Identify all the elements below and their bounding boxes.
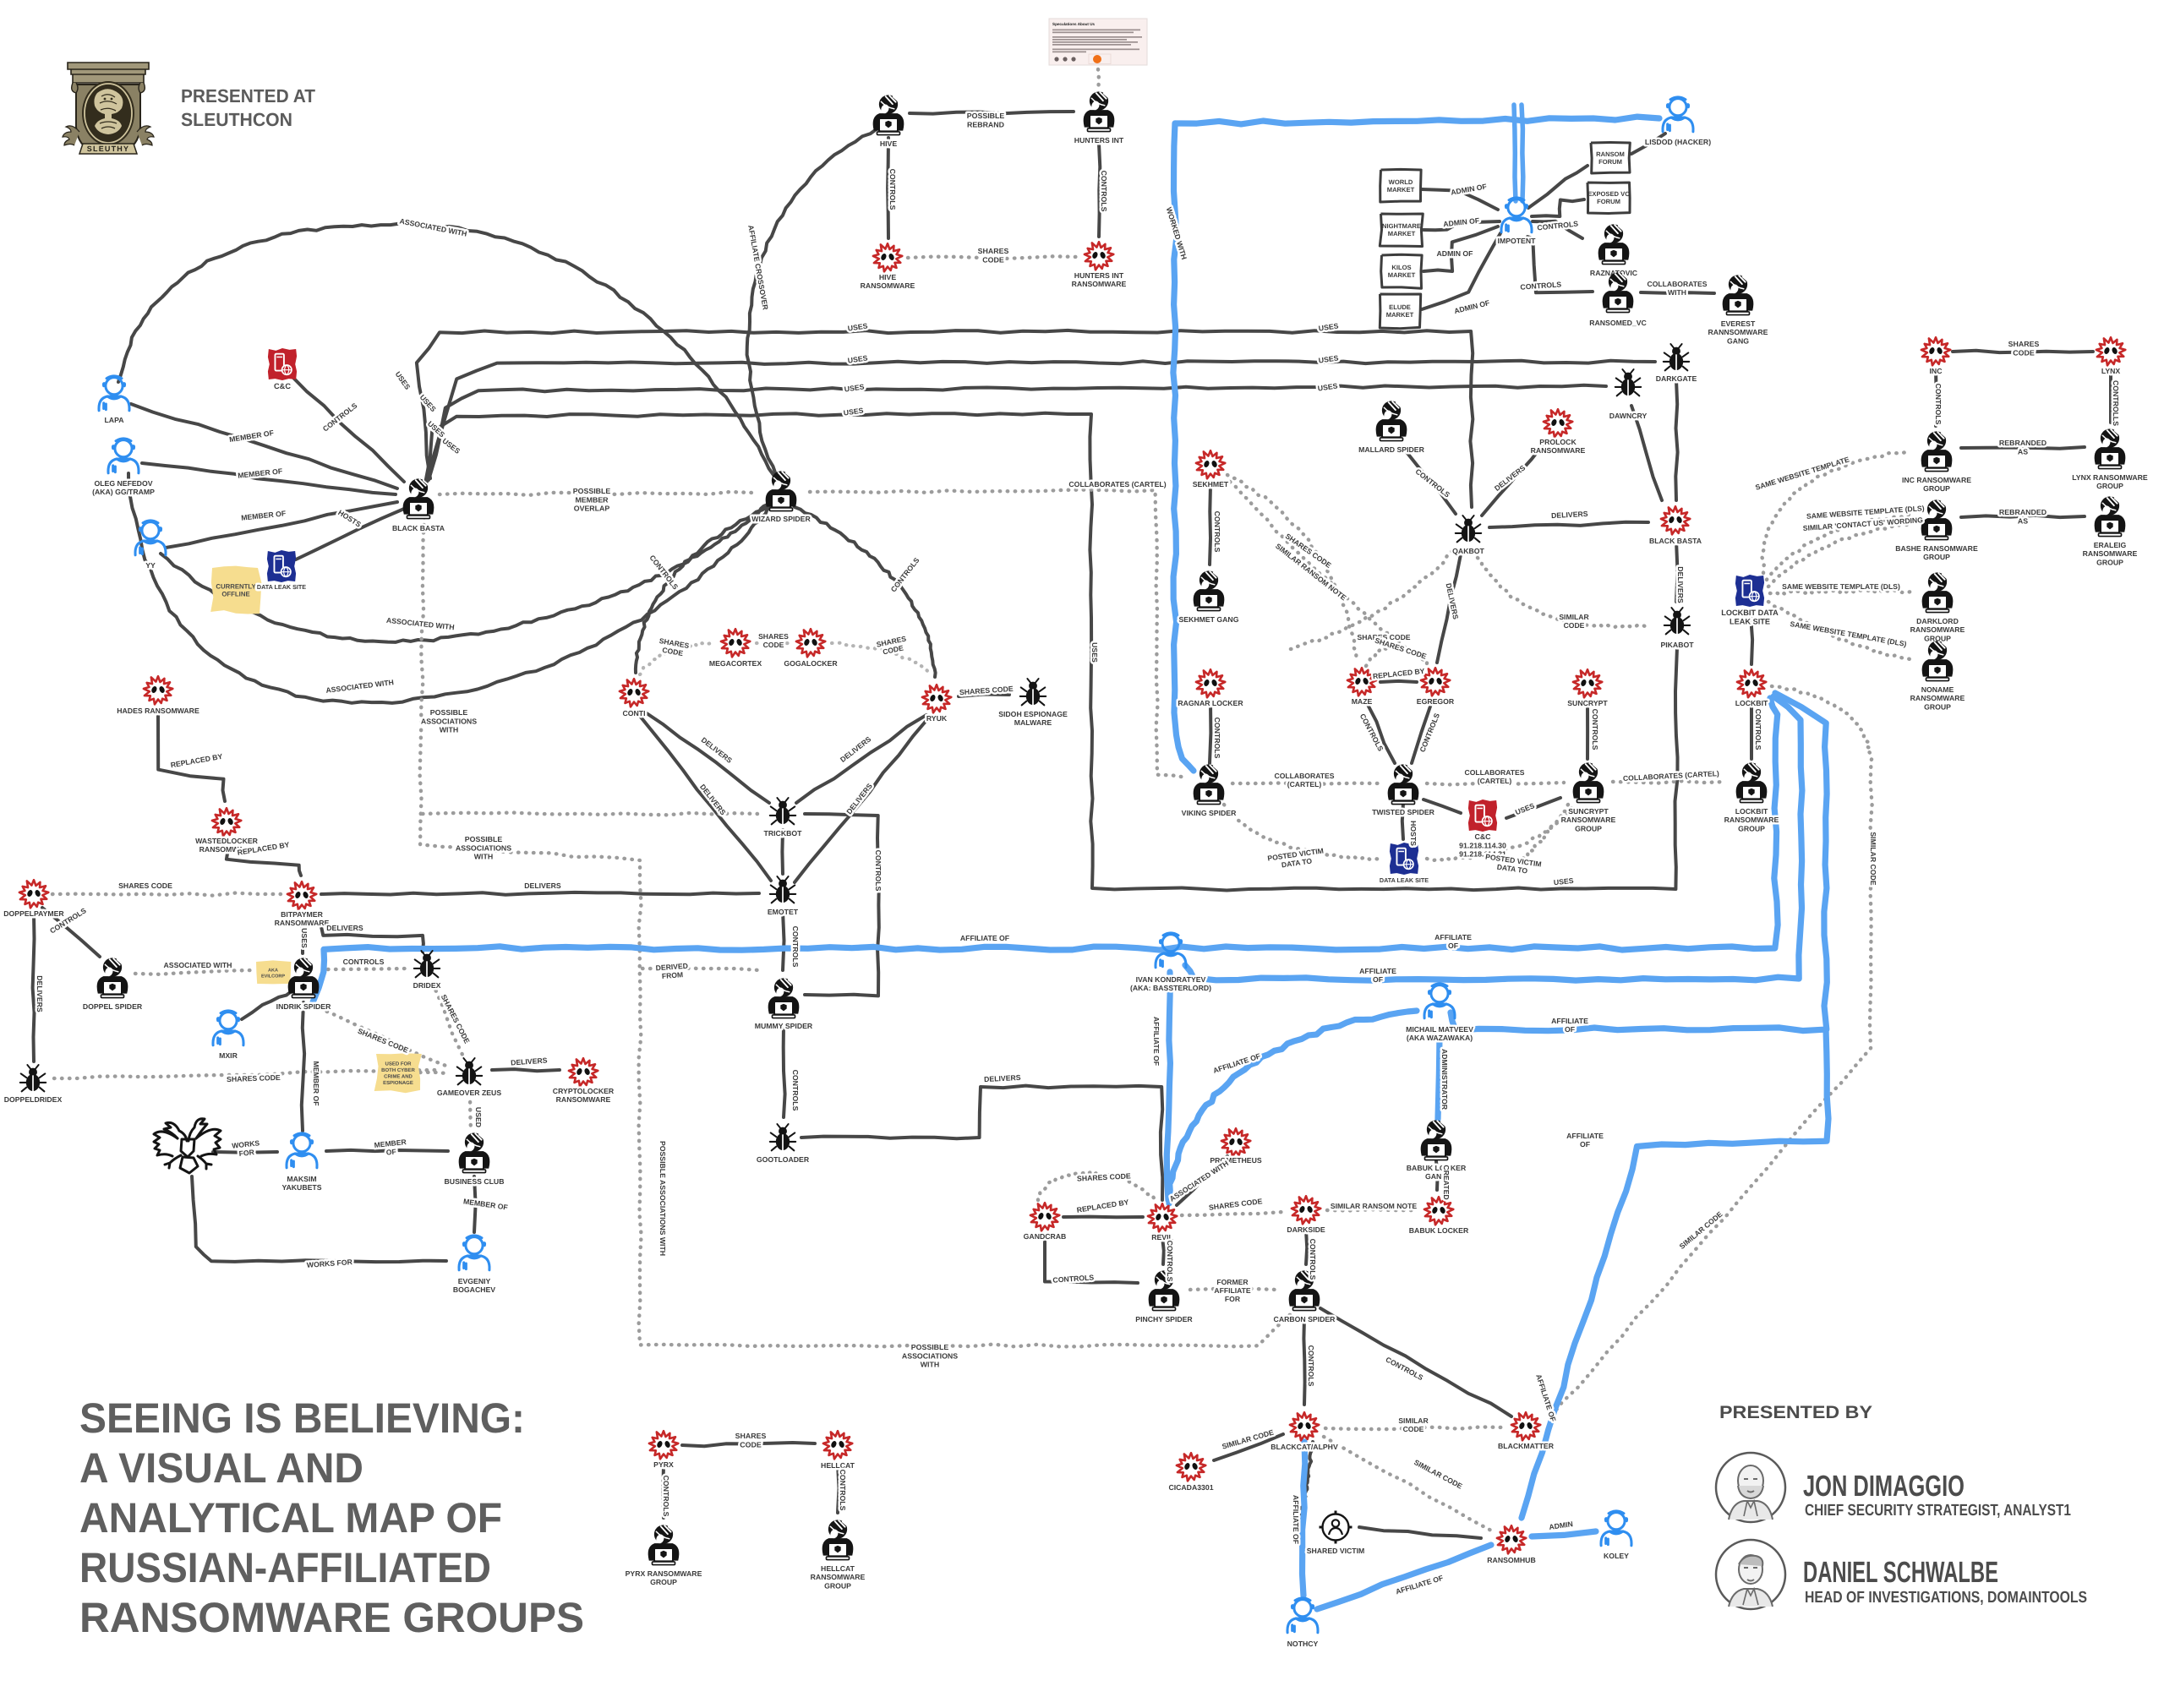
svg-text:DELIVERS: DELIVERS	[524, 881, 561, 890]
svg-text:SHARED VICTIM: SHARED VICTIM	[1307, 1547, 1365, 1555]
svg-text:RYUK: RYUK	[926, 714, 948, 723]
svg-text:MUMMY SPIDER: MUMMY SPIDER	[755, 1022, 813, 1030]
svg-text:BLACK BASTA: BLACK BASTA	[1649, 537, 1702, 545]
svg-text:ADMIN OF: ADMIN OF	[1437, 249, 1473, 258]
svg-text:DAWNCRY: DAWNCRY	[1609, 412, 1648, 420]
svg-text:DELIVERS: DELIVERS	[36, 975, 44, 1012]
svg-text:TWISTED SPIDER: TWISTED SPIDER	[1372, 808, 1435, 816]
svg-text:MALLARD SPIDER: MALLARD SPIDER	[1358, 445, 1424, 454]
svg-text:HEAD OF INVESTIGATIONS, DOMAIN: HEAD OF INVESTIGATIONS, DOMAINTOOLS	[1805, 1589, 2087, 1607]
svg-text:DOPPELDRIDEX: DOPPELDRIDEX	[4, 1095, 63, 1104]
svg-text:C&C: C&C	[274, 382, 291, 390]
svg-text:SIMILAR CODE: SIMILAR CODE	[1869, 832, 1877, 885]
svg-text:HADES RANSOMWARE: HADES RANSOMWARE	[117, 707, 199, 715]
svg-text:OLEG NEFEDOV(AKA) GG/TRAMP: OLEG NEFEDOV(AKA) GG/TRAMP	[92, 479, 155, 496]
svg-text:DOPPELPAYMER: DOPPELPAYMER	[3, 909, 64, 918]
svg-text:TRICKBOT: TRICKBOT	[764, 829, 803, 838]
svg-text:HOSTS: HOSTS	[1409, 821, 1418, 846]
svg-text:KOLEY: KOLEY	[1604, 1552, 1629, 1560]
svg-text:CONTROLS: CONTROLS	[1754, 709, 1762, 750]
svg-text:BLACKCAT/ALPHV: BLACKCAT/ALPHV	[1271, 1443, 1338, 1451]
svg-text:SAME WEBSITE TEMPLATE (DLS): SAME WEBSITE TEMPLATE (DLS)	[1782, 582, 1900, 591]
svg-text:BUSINESS CLUB: BUSINESS CLUB	[445, 1177, 505, 1186]
svg-text:SEKHMET: SEKHMET	[1193, 480, 1229, 488]
svg-text:CONTROLS: CONTROLS	[662, 1476, 670, 1517]
svg-text:GAMEOVER ZEUS: GAMEOVER ZEUS	[437, 1089, 501, 1097]
svg-text:HUNTERS INTRANSOMWARE: HUNTERS INTRANSOMWARE	[1072, 271, 1127, 288]
svg-text:CARBON SPIDER: CARBON SPIDER	[1274, 1315, 1336, 1323]
svg-text:DATA LEAK SITE: DATA LEAK SITE	[1380, 876, 1429, 884]
svg-text:PIKABOT: PIKABOT	[1660, 641, 1694, 649]
svg-text:AFFILIATE OF: AFFILIATE OF	[1152, 1017, 1161, 1066]
svg-text:NIGHTMAREMARKET: NIGHTMAREMARKET	[1382, 222, 1421, 237]
svg-text:GOOTLOADER: GOOTLOADER	[757, 1155, 810, 1164]
svg-text:Speculations About Us: Speculations About Us	[1052, 22, 1096, 26]
svg-text:MEGACORTEX: MEGACORTEX	[709, 659, 762, 668]
svg-text:CRYPTOLOCKERRANSOMWARE: CRYPTOLOCKERRANSOMWARE	[553, 1087, 615, 1104]
svg-text:RAGNAR LOCKER: RAGNAR LOCKER	[1178, 699, 1243, 707]
svg-text:CONTROLS: CONTROLS	[791, 1070, 800, 1111]
svg-text:JON DIMAGGIO: JON DIMAGGIO	[1803, 1470, 1965, 1503]
svg-text:GANDCRAB: GANDCRAB	[1024, 1232, 1067, 1241]
svg-text:WORLDMARKET: WORLDMARKET	[1387, 178, 1415, 194]
svg-text:SLEUTHY: SLEUTHY	[87, 145, 129, 153]
svg-text:RANSOMHUB: RANSOMHUB	[1487, 1556, 1535, 1564]
svg-text:POSSIBLE ASSOCIATIONS WITH: POSSIBLE ASSOCIATIONS WITH	[658, 1141, 667, 1256]
svg-text:DRIDEX: DRIDEX	[413, 981, 441, 990]
svg-text:CONTI: CONTI	[622, 709, 645, 718]
svg-text:DOPPEL SPIDER: DOPPEL SPIDER	[83, 1002, 143, 1011]
svg-text:ANALYTICAL MAP OF: ANALYTICAL MAP OF	[79, 1494, 502, 1542]
svg-text:DARKGATE: DARKGATE	[1656, 374, 1697, 383]
svg-text:INDRIK SPIDER: INDRIK SPIDER	[276, 1002, 331, 1011]
svg-text:POSSIBLEMEMBEROVERLAP: POSSIBLEMEMBEROVERLAP	[573, 487, 611, 513]
svg-text:PRESENTED BY: PRESENTED BY	[1719, 1403, 1872, 1422]
svg-text:EGREGOR: EGREGOR	[1417, 697, 1455, 706]
svg-text:SIMILAR RANSOM NOTE: SIMILAR RANSOM NOTE	[1331, 1202, 1417, 1210]
svg-text:RANSOMED_VC: RANSOMED_VC	[1589, 319, 1647, 327]
svg-text:SHARES CODE: SHARES CODE	[118, 881, 172, 890]
svg-text:QAKBOT: QAKBOT	[1452, 547, 1484, 555]
svg-text:DELIVERS: DELIVERS	[1676, 566, 1685, 603]
svg-text:WIZARD SPIDER: WIZARD SPIDER	[751, 515, 811, 523]
svg-text:EVGENIYBOGACHEV: EVGENIYBOGACHEV	[453, 1277, 495, 1294]
svg-text:LOCKBIT: LOCKBIT	[1735, 699, 1768, 707]
svg-text:CONTROLS: CONTROLS	[1213, 511, 1221, 553]
svg-text:DELIVERS: DELIVERS	[326, 924, 363, 932]
svg-text:RANSOMFORUM: RANSOMFORUM	[1596, 150, 1625, 166]
svg-text:INC: INC	[1930, 367, 1943, 375]
svg-text:BITPAYMERRANSOMWARE: BITPAYMERRANSOMWARE	[275, 910, 330, 927]
svg-text:VIKING SPIDER: VIKING SPIDER	[1182, 809, 1237, 817]
svg-text:LYNX: LYNX	[2101, 367, 2121, 375]
svg-text:A VISUAL AND: A VISUAL AND	[79, 1444, 363, 1492]
svg-text:COLLABORATES (CARTEL): COLLABORATES (CARTEL)	[1068, 480, 1166, 488]
svg-text:MAZE: MAZE	[1352, 697, 1373, 706]
svg-text:CONTROLS: CONTROLS	[1213, 718, 1221, 759]
svg-text:CONTROLS: CONTROLS	[343, 958, 385, 966]
svg-text:MEMBER OF: MEMBER OF	[312, 1061, 320, 1105]
svg-text:ADMINISTRATOR: ADMINISTRATOR	[1440, 1049, 1449, 1110]
svg-text:SEEING IS BELIEVING:: SEEING IS BELIEVING:	[79, 1394, 525, 1442]
svg-text:DATA LEAK SITE: DATA LEAK SITE	[257, 583, 306, 591]
svg-text:CONTROLS: CONTROLS	[1309, 1239, 1317, 1280]
svg-text:EMOTET: EMOTET	[768, 908, 799, 916]
svg-text:SEKHMET GANG: SEKHMET GANG	[1179, 615, 1239, 624]
svg-text:PINCHY SPIDER: PINCHY SPIDER	[1135, 1315, 1193, 1323]
svg-text:IVAN KONDRATYEV(AKA: BASSTERLO: IVAN KONDRATYEV(AKA: BASSTERLORD)	[1130, 975, 1211, 992]
svg-text:NOTHCY: NOTHCY	[1287, 1640, 1319, 1648]
svg-text:AFFILIATE OF: AFFILIATE OF	[1292, 1495, 1300, 1544]
svg-text:CONTROLS: CONTROLS	[1166, 1241, 1174, 1282]
svg-text:USES: USES	[300, 928, 309, 948]
svg-text:BLACKMATTER: BLACKMATTER	[1498, 1442, 1555, 1450]
svg-text:CHIEF SECURITY STRATEGIST, ANA: CHIEF SECURITY STRATEGIST, ANALYST1	[1805, 1502, 2071, 1520]
svg-text:CONTROLS: CONTROLS	[839, 1470, 847, 1511]
svg-text:LAPA: LAPA	[104, 416, 124, 424]
svg-text:CONTROLS: CONTROLS	[874, 850, 883, 892]
svg-text:CONTROLS: CONTROLS	[1307, 1345, 1315, 1387]
svg-text:MICHAIL MATVEEV(AKA WAZAWAKA): MICHAIL MATVEEV(AKA WAZAWAKA)	[1406, 1025, 1473, 1042]
svg-text:AFFILIATE OF: AFFILIATE OF	[960, 934, 1009, 942]
svg-text:YY: YY	[145, 561, 156, 570]
svg-text:LISDOD (HACKER): LISDOD (HACKER)	[1645, 138, 1711, 146]
svg-text:LOCKBIT DATALEAK SITE: LOCKBIT DATALEAK SITE	[1721, 608, 1779, 626]
svg-text:CONTROLS: CONTROLS	[791, 926, 800, 968]
svg-text:DANIEL SCHWALBE: DANIEL SCHWALBE	[1803, 1556, 1998, 1589]
svg-text:DARKSIDE: DARKSIDE	[1287, 1225, 1325, 1234]
svg-text:BABUK LOCKER: BABUK LOCKER	[1409, 1226, 1469, 1235]
svg-text:CREATED: CREATED	[1442, 1165, 1451, 1199]
svg-text:CONTROLS: CONTROLS	[1934, 384, 1943, 425]
svg-text:ELUDEMARKET: ELUDEMARKET	[1386, 303, 1414, 319]
svg-text:RUSSIAN-AFFILIATED: RUSSIAN-AFFILIATED	[79, 1544, 491, 1591]
svg-text:BLACK BASTA: BLACK BASTA	[392, 524, 445, 532]
svg-text:SLEUTHCON: SLEUTHCON	[181, 109, 292, 130]
svg-text:CICADA3301: CICADA3301	[1168, 1483, 1213, 1492]
svg-text:HUNTERS INT: HUNTERS INT	[1074, 136, 1124, 145]
svg-text:CONTROLS: CONTROLS	[1591, 709, 1599, 750]
svg-text:USED: USED	[474, 1107, 483, 1127]
svg-text:USES: USES	[1090, 642, 1099, 663]
svg-text:POSSIBLEREBRAND: POSSIBLEREBRAND	[967, 112, 1005, 128]
svg-text:CONTROLS: CONTROLS	[1100, 171, 1108, 212]
svg-text:SUNCRYPT: SUNCRYPT	[1567, 699, 1608, 707]
svg-text:PYRX: PYRX	[653, 1460, 674, 1469]
svg-text:HELLCAT: HELLCAT	[821, 1461, 855, 1470]
svg-text:MXIR: MXIR	[219, 1051, 238, 1060]
svg-text:IMPOTENT: IMPOTENT	[1498, 237, 1537, 245]
svg-text:ASSOCIATED WITH: ASSOCIATED WITH	[164, 961, 232, 969]
svg-text:CONTROLS: CONTROLS	[888, 169, 897, 210]
svg-text:HIVE: HIVE	[880, 139, 897, 148]
svg-text:CONTROLLS: CONTROLLS	[2112, 380, 2120, 426]
svg-text:MAKSIMYAKUBETS: MAKSIMYAKUBETS	[282, 1175, 322, 1192]
svg-text:PRESENTED AT: PRESENTED AT	[181, 85, 316, 106]
svg-text:RANSOMWARE GROUPS: RANSOMWARE GROUPS	[79, 1594, 584, 1641]
svg-text:GOGALOCKER: GOGALOCKER	[784, 659, 838, 668]
